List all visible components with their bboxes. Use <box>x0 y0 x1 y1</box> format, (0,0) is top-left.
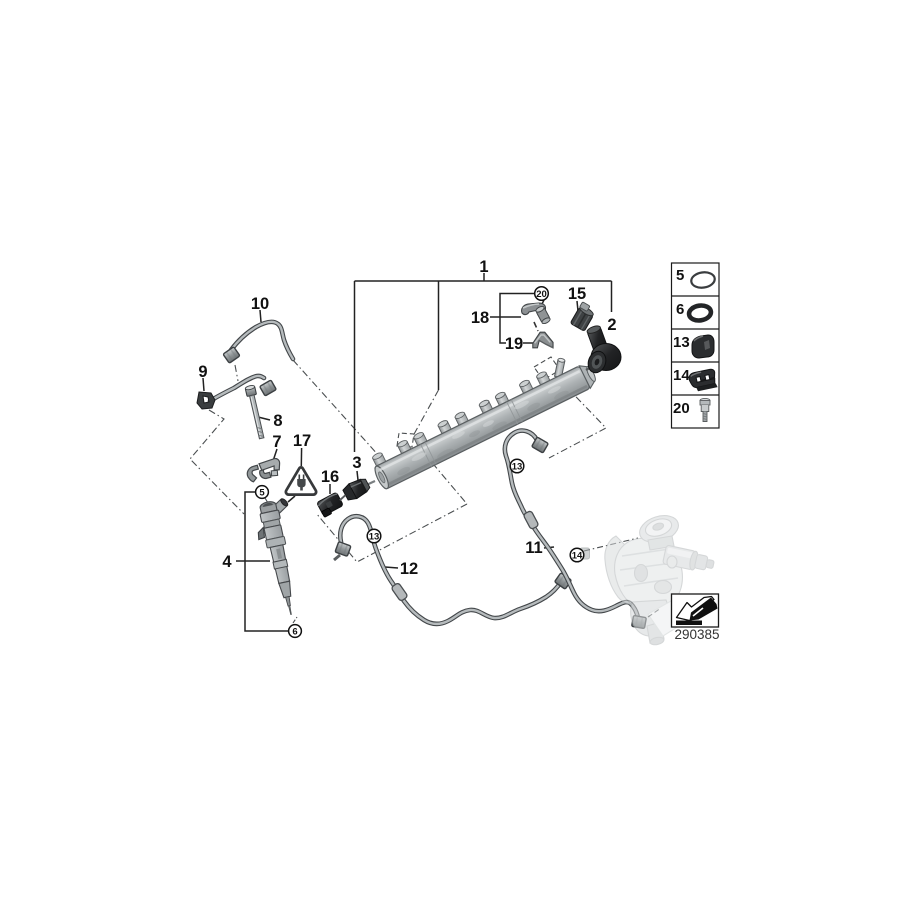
svg-text:3: 3 <box>352 454 361 472</box>
svg-text:18: 18 <box>471 309 489 327</box>
svg-text:20: 20 <box>536 289 547 300</box>
svg-text:15: 15 <box>568 285 586 303</box>
svg-text:6: 6 <box>676 301 684 318</box>
svg-text:14: 14 <box>673 367 690 384</box>
svg-text:5: 5 <box>259 488 265 499</box>
svg-text:2: 2 <box>607 316 616 334</box>
svg-text:13: 13 <box>512 462 523 473</box>
svg-text:6: 6 <box>292 627 297 638</box>
svg-text:7: 7 <box>272 433 281 451</box>
svg-text:8: 8 <box>273 412 282 430</box>
svg-text:12: 12 <box>400 560 418 578</box>
svg-text:13: 13 <box>369 532 380 543</box>
svg-text:10: 10 <box>251 295 269 313</box>
svg-text:9: 9 <box>198 363 207 381</box>
svg-text:14: 14 <box>572 551 583 562</box>
svg-text:19: 19 <box>505 335 523 353</box>
svg-text:13: 13 <box>673 334 690 351</box>
svg-text:20: 20 <box>673 400 690 417</box>
svg-text:290385: 290385 <box>674 627 719 642</box>
svg-text:16: 16 <box>321 468 339 486</box>
svg-text:1: 1 <box>479 258 488 276</box>
svg-text:4: 4 <box>222 553 232 571</box>
svg-text:17: 17 <box>293 432 311 450</box>
svg-text:5: 5 <box>676 267 684 284</box>
svg-text:11: 11 <box>525 539 542 557</box>
